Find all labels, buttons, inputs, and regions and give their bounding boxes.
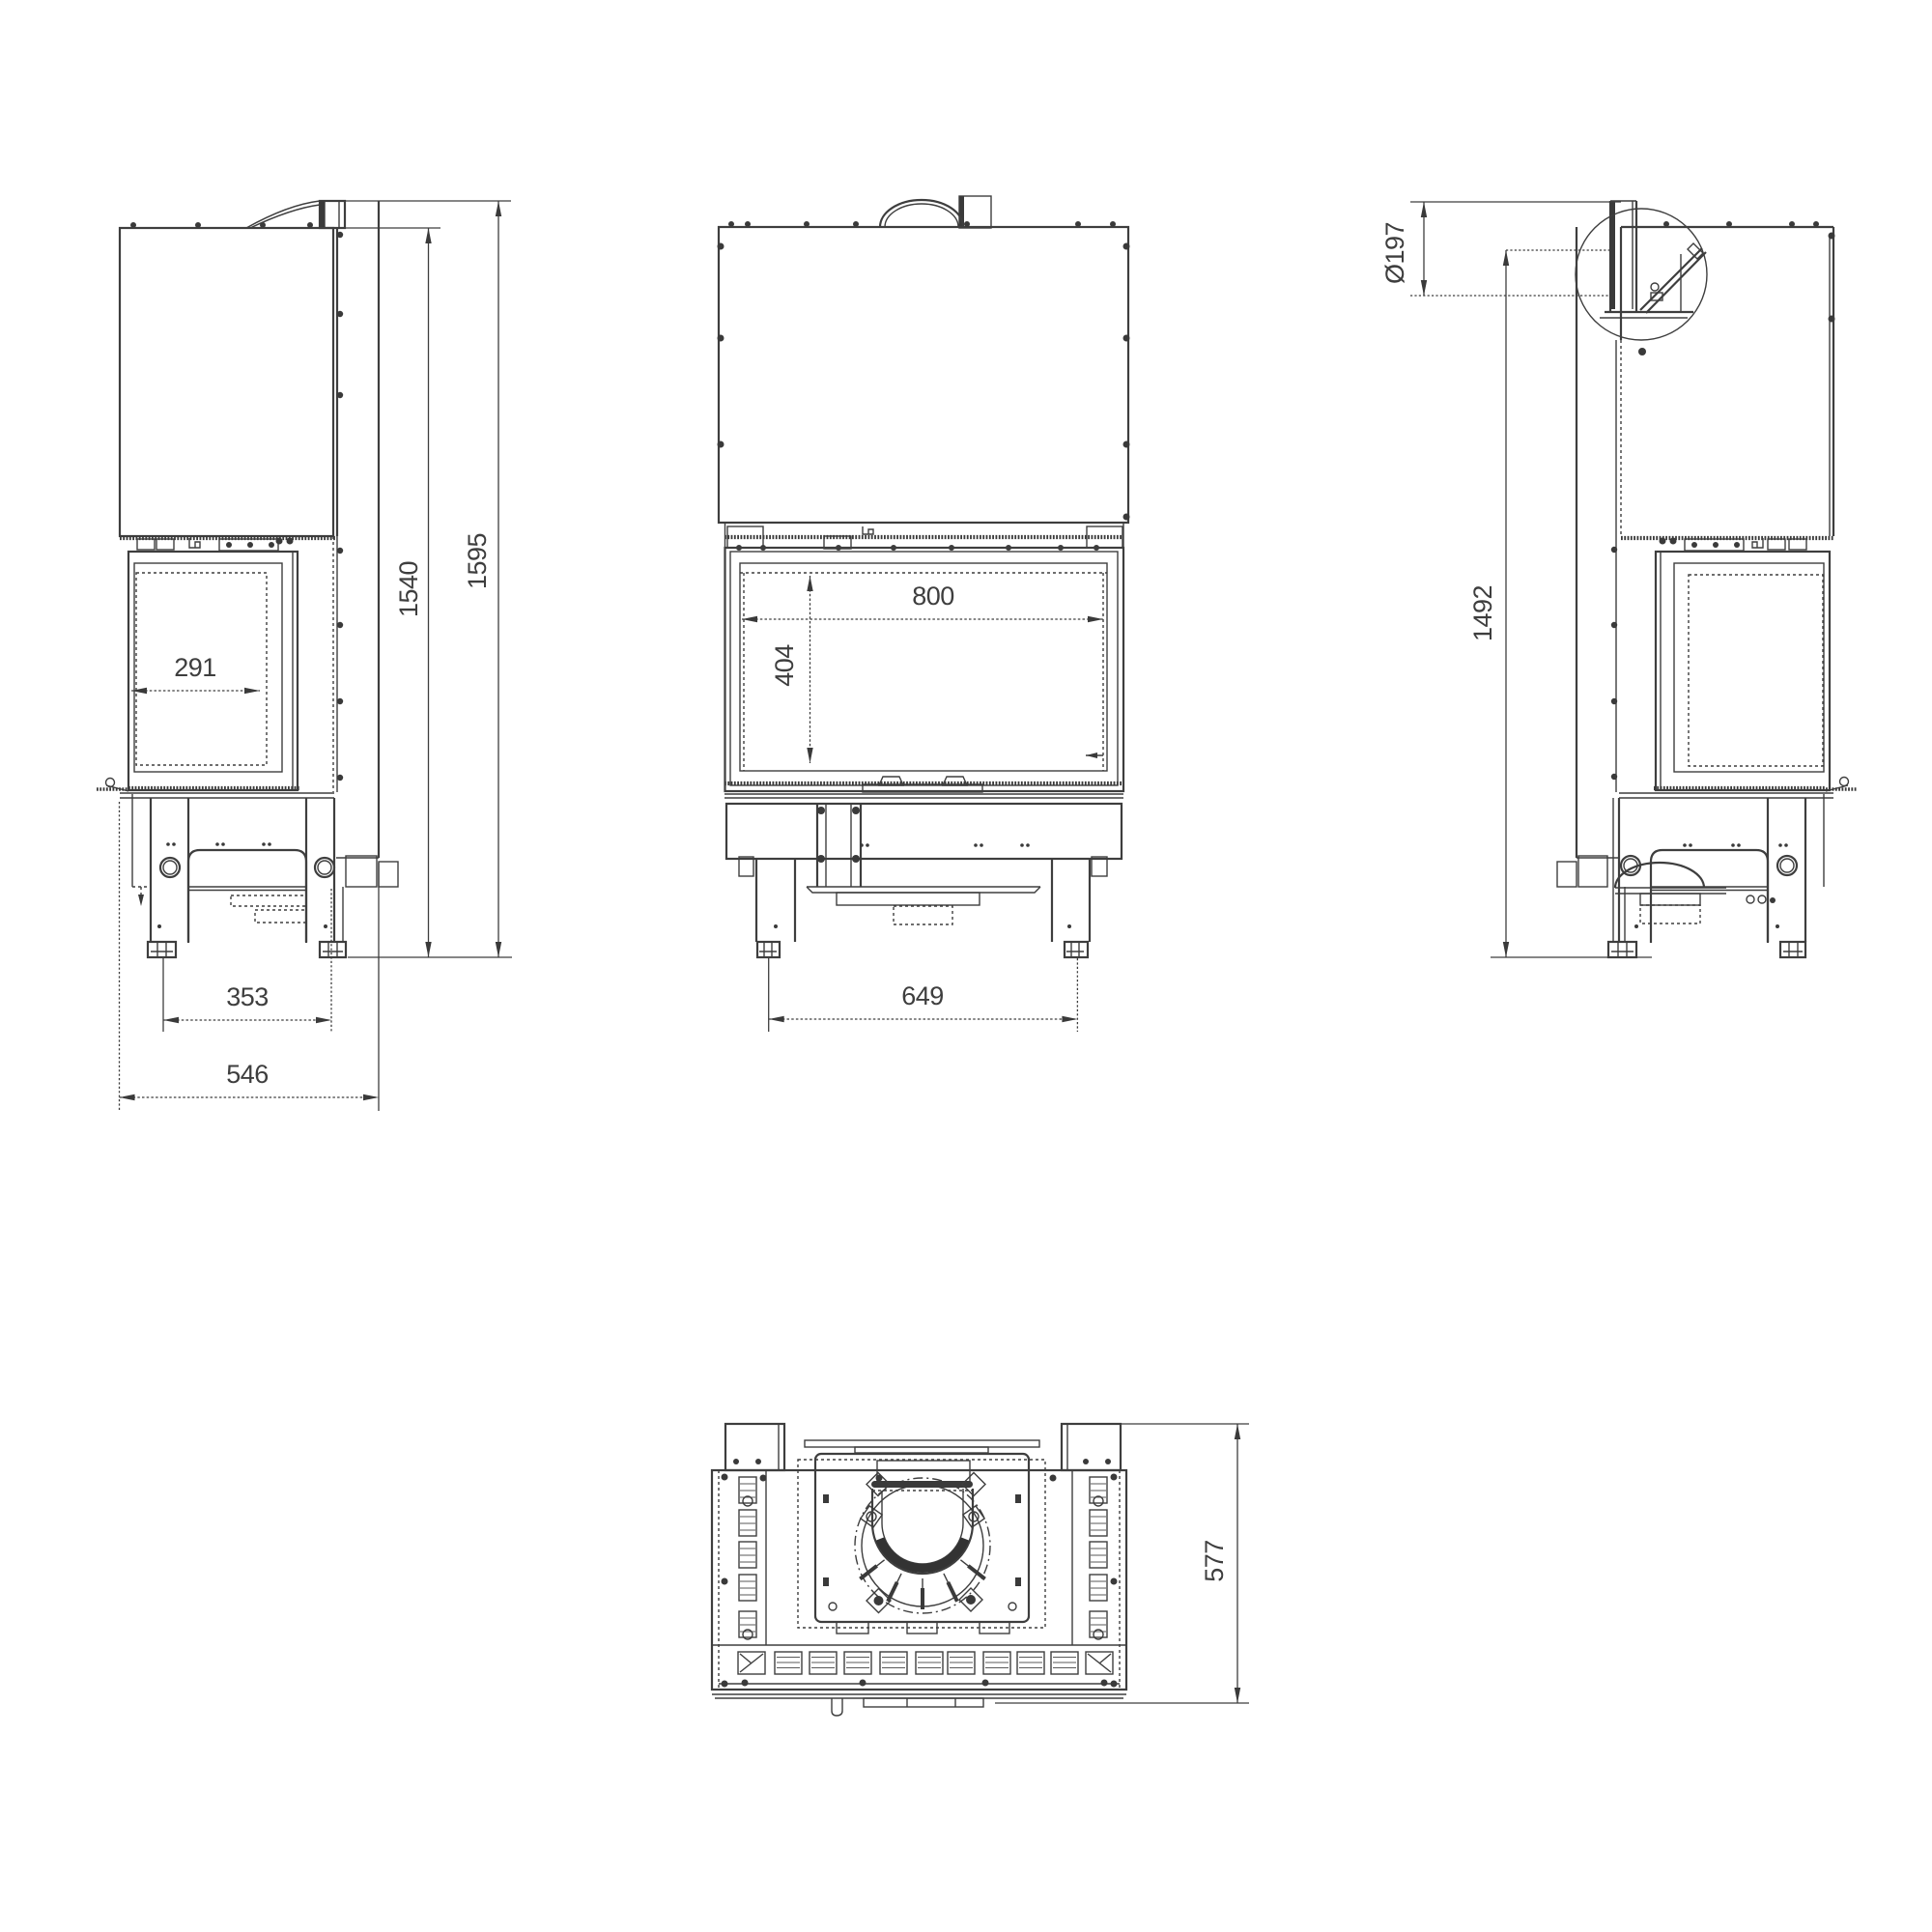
svg-text:577: 577 [1200, 1540, 1229, 1582]
svg-text:404: 404 [770, 644, 799, 687]
svg-text:Ø197: Ø197 [1380, 222, 1409, 284]
svg-text:546: 546 [226, 1060, 269, 1089]
svg-text:291: 291 [174, 653, 216, 682]
svg-text:1492: 1492 [1468, 585, 1497, 641]
svg-text:649: 649 [901, 981, 944, 1010]
svg-text:800: 800 [912, 582, 954, 611]
svg-text:353: 353 [226, 982, 269, 1011]
svg-text:1595: 1595 [463, 533, 492, 589]
svg-text:1540: 1540 [394, 561, 423, 617]
